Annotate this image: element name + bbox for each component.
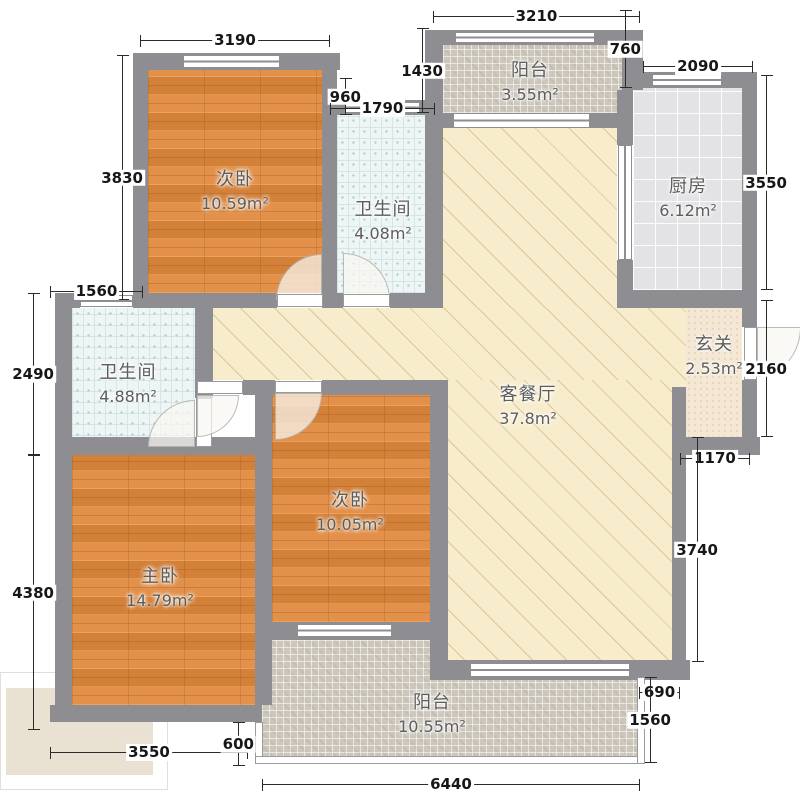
floor-living-main	[430, 380, 686, 660]
dim-living-right-height: 3740	[697, 437, 698, 662]
room-label-bath-top: 卫生间 4.08m²	[354, 195, 412, 243]
door-leaf	[275, 381, 322, 393]
room-label-master: 主卧 14.79m²	[126, 562, 194, 610]
dim-entry-right-height: 2160	[766, 300, 767, 437]
dim-bath-left-height: 2490	[33, 293, 34, 455]
wall	[443, 113, 453, 128]
dim-balcony-step: 690	[639, 692, 680, 693]
dim-entry-bottom-width: 1170	[680, 458, 750, 459]
wall	[742, 380, 757, 455]
dim-kitchen-width: 2090	[643, 66, 753, 67]
wall	[617, 260, 633, 290]
balcony-railing	[255, 756, 645, 764]
sliding-door	[618, 145, 632, 260]
dim-bath-top-window: 1790	[330, 108, 435, 109]
room-label-balcony-bottom: 阳台 10.55m²	[398, 688, 466, 736]
room-label-bedroom-right: 次卧 10.05m²	[316, 486, 384, 534]
sliding-door	[470, 663, 630, 677]
door-arc	[197, 395, 239, 437]
floor-living-upper	[443, 128, 617, 308]
dim-kitchen-right-height: 3550	[766, 75, 767, 290]
wall	[742, 72, 757, 327]
wall	[672, 387, 686, 437]
floor-living-corridor	[210, 308, 686, 380]
dim-bedroom-top-width: 3190	[140, 40, 330, 41]
door-leaf	[277, 294, 323, 307]
dim-step-height: 600	[238, 722, 239, 766]
dim-balcony-right-height: 1560	[650, 677, 651, 763]
room-label-bedroom-top: 次卧 10.59m²	[201, 165, 269, 213]
dim-master-bottom-width: 3550	[50, 752, 248, 753]
dim-wall-gap: 960	[345, 78, 346, 115]
dim-kitchen-gap: 760	[625, 10, 626, 88]
wall	[430, 380, 448, 660]
window	[455, 32, 595, 43]
dim-master-left-height: 4380	[33, 455, 34, 730]
wall	[255, 380, 272, 705]
dim-top-balcony-width: 3210	[433, 16, 640, 17]
wall	[672, 455, 686, 680]
room-label-entry: 玄关 2.53m²	[685, 330, 743, 378]
wall	[50, 705, 262, 722]
room-label-balcony-top: 阳台 3.55m²	[501, 56, 559, 104]
dim-bedroom-top-height: 3830	[122, 55, 123, 300]
door-leaf	[343, 294, 390, 307]
window	[297, 624, 392, 637]
dim-bottom-balcony-width: 6440	[262, 784, 640, 785]
dim-balcony-top-depth: 1430	[422, 28, 423, 113]
room-label-bath-left: 卫生间 4.88m²	[99, 358, 157, 406]
window	[652, 74, 722, 86]
door-leaf	[197, 381, 243, 394]
room-label-living: 客餐厅 37.8m²	[499, 380, 557, 428]
room-label-kitchen: 厨房 6.12m²	[659, 172, 717, 220]
window	[183, 55, 280, 68]
wall	[55, 293, 72, 722]
wall	[617, 290, 757, 308]
sliding-door	[453, 113, 590, 128]
dim-bath-left-window: 1560	[50, 291, 143, 292]
floor-plan: 3210 3190 1430 960 1790 760 2090 3550 38…	[0, 0, 800, 800]
wall	[590, 113, 633, 128]
